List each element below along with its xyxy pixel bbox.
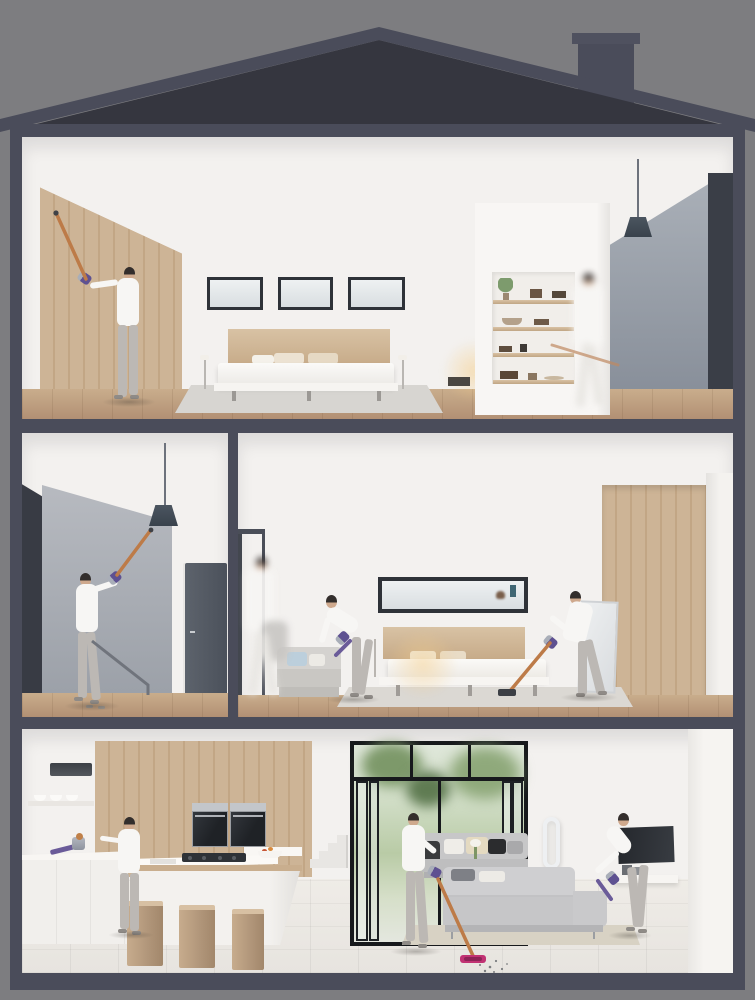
bed-leg	[468, 685, 472, 696]
stair-step	[337, 835, 348, 868]
bedside-lamp-shade	[200, 355, 209, 360]
pendant-cord	[637, 159, 639, 219]
shelf-jar	[520, 344, 527, 352]
person-leg	[118, 325, 127, 397]
sofa-leg	[451, 932, 453, 939]
pendant-cord	[164, 443, 166, 505]
clerestory-window-1	[207, 277, 263, 310]
shelf-box	[534, 319, 549, 325]
fruit-bowl	[258, 851, 282, 858]
warm-lamp-glow	[388, 629, 458, 699]
person-shadow	[108, 931, 154, 939]
clerestory-window-2	[278, 277, 333, 310]
white-cushion	[479, 871, 505, 882]
gray-accent-wall	[610, 177, 708, 419]
burner	[202, 856, 206, 860]
burner	[218, 856, 222, 860]
door-lintel	[238, 529, 265, 534]
person-leg	[406, 871, 415, 941]
fan-loop	[543, 817, 560, 869]
person-leg	[587, 345, 604, 406]
person-walking-blurred	[557, 273, 619, 415]
bed-leg	[377, 391, 381, 401]
wood-stool	[179, 905, 215, 968]
transom-mullion	[468, 745, 471, 777]
person-shadow	[64, 701, 120, 711]
wall-shelf	[28, 801, 94, 806]
gray-cushion	[451, 869, 475, 881]
black-cushion	[488, 839, 506, 854]
bedside-lamp	[402, 359, 404, 389]
burner	[232, 856, 236, 860]
bed-leg	[232, 391, 236, 401]
person-torso	[562, 600, 595, 645]
pendant-lamp	[624, 217, 652, 237]
double-wall-ovens	[192, 803, 266, 847]
person-shadow	[560, 693, 618, 702]
window-sill-bottle	[510, 585, 516, 597]
person-leg	[86, 632, 101, 701]
roof	[0, 0, 755, 140]
person-head	[618, 813, 629, 826]
clerestory-window-3	[348, 277, 405, 310]
door-handle	[190, 631, 195, 633]
stairwell-room	[22, 433, 228, 717]
bedside-lamp	[204, 359, 206, 389]
person-arm	[319, 617, 332, 644]
bed-leg	[307, 391, 311, 401]
top-floor	[22, 137, 733, 419]
shelf-jar	[528, 373, 537, 380]
transom-mullion	[410, 745, 413, 777]
bed-platform	[214, 383, 398, 391]
middle-floor	[22, 433, 733, 717]
window-sill-object	[496, 591, 505, 599]
person-torso	[573, 285, 603, 345]
person-shadow	[102, 397, 156, 407]
person-foot	[402, 941, 411, 945]
bedside-lamp-shade	[398, 355, 407, 360]
sofa-body	[443, 897, 575, 925]
wood-stool	[232, 909, 264, 970]
middle-bedroom	[238, 433, 733, 717]
shelf-bowl	[502, 318, 522, 325]
chimney-cap	[572, 33, 640, 44]
person-torso	[603, 823, 634, 856]
floor-divider	[22, 717, 733, 729]
folded-door-panel	[369, 781, 379, 941]
person-leg	[414, 871, 428, 943]
wall-pillar	[228, 433, 238, 717]
flower-stem	[474, 845, 477, 859]
fireplace-slit	[448, 377, 470, 386]
white-cushion	[309, 654, 325, 666]
long-window	[378, 577, 528, 613]
person-vacuuming-sofa	[324, 593, 380, 703]
person-walking-blurred	[238, 557, 284, 703]
oven-control-panel	[230, 803, 266, 811]
person-arm	[594, 850, 620, 875]
right-wall-column	[688, 729, 733, 973]
ground-floor	[22, 729, 733, 973]
white-flowers	[470, 839, 481, 847]
mattress	[218, 363, 394, 385]
person-vacuuming-floor	[556, 589, 620, 703]
range-hood	[50, 763, 92, 776]
gray-door	[185, 563, 227, 697]
person-leg	[130, 873, 139, 931]
blue-cushion	[287, 652, 307, 666]
plant-pot	[503, 293, 509, 300]
dark-corner-panel	[708, 173, 733, 419]
folded-door-panel	[356, 781, 368, 941]
person-leg	[120, 873, 129, 929]
bed-leg	[533, 685, 537, 696]
shelf-box	[500, 371, 518, 379]
person-torso	[402, 825, 425, 871]
gray-cushion	[507, 841, 523, 854]
handheld-cyclone	[76, 833, 83, 840]
wood-floor	[22, 693, 228, 717]
house-frame	[10, 124, 745, 990]
oven-handle	[195, 815, 225, 817]
person-shadow	[326, 695, 380, 704]
house-interior	[22, 137, 733, 973]
person-torso	[118, 829, 140, 873]
shelf-box	[499, 346, 512, 352]
oven-handle	[233, 815, 263, 817]
person-shadow	[390, 947, 442, 956]
burner	[188, 856, 192, 860]
person-vacuuming-tiles	[388, 813, 444, 959]
dark-wall-strip	[22, 477, 42, 717]
person-at-counter	[106, 815, 156, 937]
oven-control-panel	[192, 803, 228, 811]
person-torso	[117, 278, 139, 326]
pendant-lamp	[149, 505, 178, 526]
person-leg	[78, 632, 87, 698]
person-shadow	[608, 931, 652, 940]
shelf-box	[530, 289, 542, 298]
house-cutaway-scene	[0, 0, 755, 1000]
white-cushion	[444, 839, 464, 854]
person-cleaning-pendant	[64, 569, 124, 709]
corner-wall	[706, 473, 733, 707]
person-leg	[129, 325, 138, 395]
person-vacuuming-wall	[100, 265, 160, 407]
floor-divider	[22, 419, 733, 433]
